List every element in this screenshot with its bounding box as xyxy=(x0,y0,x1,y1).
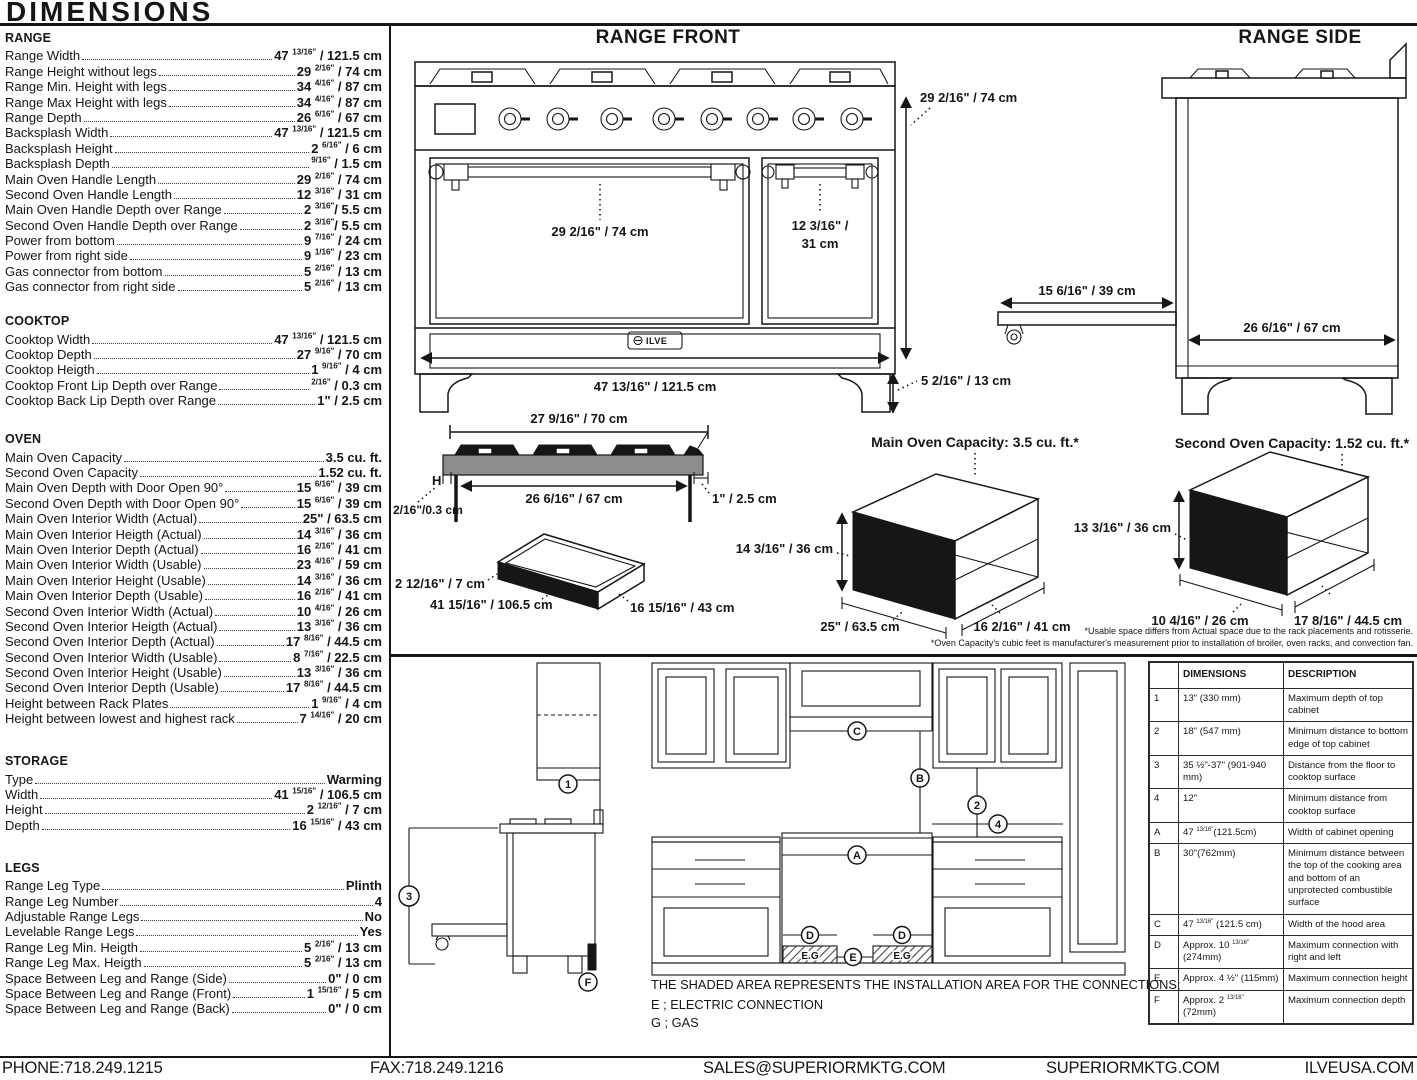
dotted-leader xyxy=(84,121,295,122)
spec-value: 17 8/16" / 44.5 cm xyxy=(286,634,382,649)
table-header-key xyxy=(1149,662,1179,688)
row-description: Maximum connection depth xyxy=(1284,990,1414,1024)
spec-value: Plinth xyxy=(346,878,382,893)
footer-website[interactable]: SUPERIORMKTG.COM xyxy=(1046,1059,1220,1078)
spec-value: No xyxy=(365,909,382,924)
spec-value: 2 12/16" / 7 cm xyxy=(307,802,382,817)
dotted-leader xyxy=(42,829,291,830)
spec-label: Type xyxy=(5,772,33,787)
dotted-leader xyxy=(130,259,302,260)
spec-row: Main Oven Handle Length 29 2/16" / 74 cm xyxy=(5,171,382,186)
spec-row: Range Depth 26 6/16" / 67 cm xyxy=(5,110,382,125)
row-key: C xyxy=(1149,914,1179,935)
spec-label: Main Oven Depth with Door Open 90° xyxy=(5,480,223,495)
table-header-description: DESCRIPTION xyxy=(1284,662,1414,688)
row-key: E xyxy=(1149,969,1179,990)
dotted-leader xyxy=(205,599,295,600)
spec-value: Warming xyxy=(327,772,382,787)
second-handle-label-2: 31 cm xyxy=(802,236,839,251)
spec-row: Cooktop Heigth 1 9/16" / 4 cm xyxy=(5,362,382,377)
open-door-shelf xyxy=(998,312,1176,325)
marker-3: 3 xyxy=(406,891,412,903)
spec-value: 0" / 0 cm xyxy=(328,971,382,986)
spec-row: Depth 16 15/16" / 43 cm xyxy=(5,817,382,832)
dotted-leader xyxy=(217,645,284,646)
spec-label: Second Oven Capacity xyxy=(5,465,138,480)
spec-value: 17 8/16" / 44.5 cm xyxy=(286,680,382,695)
dotted-leader xyxy=(219,389,309,390)
spec-value: Yes xyxy=(360,924,382,939)
spec-label: Second Oven Interior Width (Usable) xyxy=(5,650,217,665)
spec-row: Second Oven Interior Heigth (Actual) 13 … xyxy=(5,619,382,634)
spec-row: Range Leg Min. Heigth 5 2/16" / 13 cm xyxy=(5,939,382,954)
spec-label: Second Oven Interior Heigth (Actual) xyxy=(5,619,217,634)
spec-row: Space Between Leg and Range (Side) 0" / … xyxy=(5,970,382,985)
spec-value: 4 xyxy=(375,894,382,909)
dotted-leader xyxy=(170,707,309,708)
dotted-leader xyxy=(204,538,295,539)
upper-left-cabinets xyxy=(652,663,790,768)
dotted-leader xyxy=(165,275,302,276)
spec-section-range: RANGE Range Width 47 13/16" / 121.5 cm R… xyxy=(5,31,382,294)
table-row: A 47 13/16"(121.5cm) Width of cabinet op… xyxy=(1149,822,1413,843)
dotted-leader xyxy=(224,676,295,677)
spec-label: Second Oven Handle Depth over Range xyxy=(5,218,238,233)
row-dimension: Approx. 10 13/16" (274mm) xyxy=(1179,935,1284,969)
spec-label: Power from bottom xyxy=(5,233,115,248)
leg-height-label: 5 2/16" / 13 cm xyxy=(921,373,1011,388)
spec-label: Range Min. Height with legs xyxy=(5,79,167,94)
dotted-leader xyxy=(208,584,295,585)
cooktop-profile-drawing: 27 9/16" / 70 cm 26 6/16" / 67 cm 1" / 2… xyxy=(393,411,777,522)
spec-value: 23 4/16" / 59 cm xyxy=(297,557,382,572)
dotted-leader xyxy=(124,461,324,462)
dotted-leader xyxy=(224,213,302,214)
front-right-leg xyxy=(838,374,890,412)
section-title-oven: OVEN xyxy=(5,432,382,446)
spec-label: Second Oven Interior Depth (Actual) xyxy=(5,634,215,649)
dotted-leader xyxy=(215,615,295,616)
dotted-leader xyxy=(169,106,295,107)
spec-row: Main Oven Interior Width (Usable) 23 4/1… xyxy=(5,557,382,572)
row-description: Maximum connection with right and left xyxy=(1284,935,1414,969)
dotted-leader xyxy=(201,553,295,554)
spec-row: Gas connector from right side 5 2/16" / … xyxy=(5,279,382,294)
marker-1: 1 xyxy=(565,779,571,791)
spec-row: Second Oven Interior Depth (Actual) 17 8… xyxy=(5,634,382,649)
spec-value: 1.52 cu. ft. xyxy=(318,465,382,480)
table-row: D Approx. 10 13/16" (274mm) Maximum conn… xyxy=(1149,935,1413,969)
spec-row: Second Oven Interior Width (Usable) 8 7/… xyxy=(5,649,382,664)
row-key: F xyxy=(1149,990,1179,1024)
spec-label: Main Oven Interior Heigth (Actual) xyxy=(5,527,202,542)
row-description: Minimum distance between the top of the … xyxy=(1284,844,1414,914)
footnote-2: *Oven Capacity's cubic feet is manufactu… xyxy=(931,638,1413,650)
dotted-leader xyxy=(141,920,362,921)
dotted-leader xyxy=(169,90,295,91)
section-title-legs: LEGS xyxy=(5,861,382,875)
footnote-1: *Usable space differs from Actual space … xyxy=(931,626,1413,638)
spec-row: Range Max Height with legs 34 4/16" / 87… xyxy=(5,94,382,109)
spec-row: Range Min. Height with legs 34 4/16" / 8… xyxy=(5,79,382,94)
row-dimension: 30"(762mm) xyxy=(1179,844,1284,914)
second-oven-height-label: 13 3/16" / 36 cm xyxy=(1074,520,1171,535)
spec-row: Power from right side 9 1/16" / 23 cm xyxy=(5,248,382,263)
table-row: E Approx. 4 ½" (115mm) Maximum connectio… xyxy=(1149,969,1413,990)
spec-label: Cooktop Back Lip Depth over Range xyxy=(5,393,216,408)
front-lip-label: 2/16"/0.3 cm xyxy=(393,503,463,517)
spec-label: Height between Rack Plates xyxy=(5,696,168,711)
spec-row: Range Leg Number 4 xyxy=(5,893,382,908)
spec-row: Second Oven Handle Length 12 3/16" / 31 … xyxy=(5,187,382,202)
spec-label: Main Oven Handle Depth over Range xyxy=(5,202,222,217)
door-caster xyxy=(1005,325,1023,344)
upper-right-cabinets xyxy=(933,663,1062,768)
range-height-label: 29 2/16" / 74 cm xyxy=(920,90,1017,105)
dotted-leader xyxy=(97,373,310,374)
row-dimension: 47 13/16" (121.5 cm) xyxy=(1179,914,1284,935)
second-oven-capacity-title: Second Oven Capacity: 1.52 cu. ft.* xyxy=(1175,435,1410,451)
dotted-leader xyxy=(140,476,316,477)
footer-rule xyxy=(0,1056,1417,1058)
spec-row: Second Oven Capacity 1.52 cu. ft. xyxy=(5,465,382,480)
spec-value: 8 7/16" / 22.5 cm xyxy=(293,650,382,665)
marker-f: F xyxy=(585,977,592,989)
spec-value: 12 3/16" / 31 cm xyxy=(297,187,382,202)
row-dimension: 18" (547 mm) xyxy=(1179,722,1284,756)
spec-rows-storage: Type Warming Width 41 15/16" / 106.5 cm … xyxy=(5,771,382,833)
backsplash xyxy=(1390,44,1406,78)
spec-rows-cooktop: Cooktop Width 47 13/16" / 121.5 cm Cookt… xyxy=(5,331,382,408)
spec-row: Backsplash Width 47 13/16" / 121.5 cm xyxy=(5,125,382,140)
spec-label: Cooktop Depth xyxy=(5,347,92,362)
spec-label: Range Leg Number xyxy=(5,894,118,909)
marker-b: B xyxy=(916,773,924,785)
spec-label: Range Height without legs xyxy=(5,64,157,79)
spec-label: Main Oven Interior Depth (Actual) xyxy=(5,542,199,557)
spec-row: Main Oven Depth with Door Open 90° 15 6/… xyxy=(5,480,382,495)
spec-row: Second Oven Interior Depth (Usable) 17 8… xyxy=(5,680,382,695)
row-dimension: Approx. 4 ½" (115mm) xyxy=(1179,969,1284,990)
section-title-cooktop: COOKTOP xyxy=(5,314,382,328)
row-description: Minimum distance from cooktop surface xyxy=(1284,789,1414,823)
dotted-leader xyxy=(225,491,294,492)
marker-e: E xyxy=(849,952,856,964)
spec-row: Range Width 47 13/16" / 121.5 cm xyxy=(5,48,382,63)
spec-row: Cooktop Back Lip Depth over Range 1" / 2… xyxy=(5,393,382,408)
main-handle-label: 29 2/16" / 74 cm xyxy=(551,224,648,239)
spec-value: 16 2/16" / 41 cm xyxy=(297,542,382,557)
main-oven-door xyxy=(430,158,749,324)
spec-label: Backsplash Depth xyxy=(5,156,110,171)
dotted-leader xyxy=(140,951,302,952)
front-lip-h-label: H xyxy=(432,473,441,488)
spec-row: Cooktop Depth 27 9/16" / 70 cm xyxy=(5,347,382,362)
spec-rows-oven: Main Oven Capacity 3.5 cu. ft. Second Ov… xyxy=(5,449,382,726)
dotted-leader xyxy=(82,59,272,60)
spec-label: Second Oven Depth with Door Open 90° xyxy=(5,496,239,511)
spec-row: Main Oven Interior Heigth (Actual) 14 3/… xyxy=(5,526,382,541)
spec-value: 5 2/16" / 13 cm xyxy=(304,279,382,294)
spec-row: Gas connector from bottom 5 2/16" / 13 c… xyxy=(5,263,382,278)
dotted-leader xyxy=(115,152,310,153)
spec-value: 16 15/16" / 43 cm xyxy=(292,818,382,833)
spec-label: Main Oven Interior Width (Usable) xyxy=(5,557,202,572)
brand-text: ILVE xyxy=(646,336,667,346)
spec-section-oven: OVEN Main Oven Capacity 3.5 cu. ft. Seco… xyxy=(5,432,382,726)
spec-label: Backsplash Width xyxy=(5,125,108,140)
oven-capacity-footnotes: *Usable space differs from Actual space … xyxy=(931,626,1413,649)
spec-label: Range Leg Type xyxy=(5,878,100,893)
spec-label: Cooktop Front Lip Depth over Range xyxy=(5,378,217,393)
dotted-leader xyxy=(219,661,291,662)
dotted-leader xyxy=(110,136,272,137)
spec-value: 1 9/16" / 4 cm xyxy=(311,696,382,711)
row-dimension: Approx. 2 13/16" (72mm) xyxy=(1179,990,1284,1024)
range-side-small xyxy=(507,833,595,956)
table-row: 1 13" (330 mm) Maximum depth of top cabi… xyxy=(1149,688,1413,722)
spec-value: 9 7/16" / 24 cm xyxy=(304,233,382,248)
storage-drawer-drawing: 2 12/16" / 7 cm 41 15/16" / 106.5 cm 16 … xyxy=(395,534,734,615)
row-dimension: 13" (330 mm) xyxy=(1179,688,1284,722)
spec-label: Cooktop Heigth xyxy=(5,362,95,377)
footer-brand-website[interactable]: ILVEUSA.COM xyxy=(1305,1059,1414,1078)
spec-value: 47 13/16" / 121.5 cm xyxy=(274,332,382,347)
spec-value: 27 9/16" / 70 cm xyxy=(297,347,382,362)
spec-row: Range Leg Max. Heigth 5 2/16" / 13 cm xyxy=(5,955,382,970)
spec-value: 13 3/16" / 36 cm xyxy=(297,619,382,634)
spec-row: Range Leg Type Plinth xyxy=(5,878,382,893)
control-knobs xyxy=(499,108,872,130)
spec-value: 25" / 63.5 cm xyxy=(303,511,382,526)
dotted-leader xyxy=(218,404,315,405)
dotted-leader xyxy=(221,691,284,692)
row-description: Maximum depth of top cabinet xyxy=(1284,688,1414,722)
spec-label: Gas connector from right side xyxy=(5,279,176,294)
marker-d-right: D xyxy=(898,930,906,942)
dotted-leader xyxy=(45,813,305,814)
spec-value: 13 3/16" / 36 cm xyxy=(297,665,382,680)
spec-label: Gas connector from bottom xyxy=(5,264,163,279)
spec-row: Height 2 12/16" / 7 cm xyxy=(5,802,382,817)
spec-row: Main Oven Interior Height (Usable) 14 3/… xyxy=(5,572,382,587)
row-key: 3 xyxy=(1149,755,1179,789)
table-row: F Approx. 2 13/16" (72mm) Maximum connec… xyxy=(1149,990,1413,1024)
spec-value: 34 4/16" / 87 cm xyxy=(297,79,382,94)
dotted-leader xyxy=(117,244,302,245)
dotted-leader xyxy=(112,167,309,168)
spec-row: Backsplash Depth 9/16" / 1.5 cm xyxy=(5,156,382,171)
spec-row: Cooktop Width 47 13/16" / 121.5 cm xyxy=(5,331,382,346)
second-handle-label-1: 12 3/16" / xyxy=(792,218,849,233)
spec-label: Space Between Leg and Range (Side) xyxy=(5,971,227,986)
spec-label: Range Leg Max. Heigth xyxy=(5,955,142,970)
table-row: B 30"(762mm) Minimum distance between th… xyxy=(1149,844,1413,914)
dotted-leader xyxy=(94,358,295,359)
spec-value: 1 9/16" / 4 cm xyxy=(311,362,382,377)
spec-label: Adjustable Range Legs xyxy=(5,909,139,924)
range-width-label: 47 13/16" / 121.5 cm xyxy=(594,379,717,394)
spec-sheet-page: DIMENSIONS RANGE Range Width 47 13/16" /… xyxy=(0,0,1417,1080)
spec-row: Backsplash Height 2 6/16" / 6 cm xyxy=(5,140,382,155)
row-key: 4 xyxy=(1149,789,1179,823)
dotted-leader xyxy=(240,229,302,230)
dotted-leader xyxy=(159,75,295,76)
spec-label: Power from right side xyxy=(5,248,128,263)
spec-label: Main Oven Interior Height (Usable) xyxy=(5,573,206,588)
wall-cabinet xyxy=(537,663,600,780)
cooktop-burners xyxy=(455,445,703,455)
row-description: Width of the hood area xyxy=(1284,914,1414,935)
spec-label: Main Oven Interior Width (Actual) xyxy=(5,511,197,526)
spec-section-cooktop: COOKTOP Cooktop Width 47 13/16" / 121.5 … xyxy=(5,314,382,408)
spec-section-storage: STORAGE Type Warming Width 41 15/16" / 1… xyxy=(5,754,382,833)
spec-label: Range Width xyxy=(5,48,80,63)
spec-row: Second Oven Depth with Door Open 90° 15 … xyxy=(5,495,382,510)
range-depth-label: 26 6/16" / 67 cm xyxy=(1243,320,1340,335)
spec-value: 1" / 2.5 cm xyxy=(317,393,382,408)
storage-height-label: 2 12/16" / 7 cm xyxy=(395,576,485,591)
spec-value: 47 13/16" / 121.5 cm xyxy=(274,125,382,140)
dotted-leader xyxy=(35,783,325,784)
row-key: D xyxy=(1149,935,1179,969)
dimensions-table-wrap: DIMENSIONS DESCRIPTION 1 13" (330 mm) Ma… xyxy=(1148,661,1414,1025)
spec-label: Range Max Height with legs xyxy=(5,95,167,110)
eg-label-right: E.G xyxy=(893,951,910,962)
dotted-leader xyxy=(229,982,326,983)
main-oven-height-label: 14 3/16" / 36 cm xyxy=(736,541,833,556)
dotted-leader xyxy=(199,522,301,523)
spec-row: Adjustable Range Legs No xyxy=(5,909,382,924)
spec-value: 9 1/16" / 23 cm xyxy=(304,248,382,263)
dotted-leader xyxy=(120,905,372,906)
spec-value: 2 6/16" / 6 cm xyxy=(311,141,382,156)
dotted-leader xyxy=(219,630,294,631)
spec-value: 5 2/16" / 13 cm xyxy=(304,955,382,970)
elevation-installation-drawing: C B 2 4 xyxy=(652,663,1125,975)
row-description: Minimum distance to bottom edge of top c… xyxy=(1284,722,1414,756)
spec-row: Power from bottom 9 7/16" / 24 cm xyxy=(5,233,382,248)
spec-row: Second Oven Handle Depth over Range 2 3/… xyxy=(5,217,382,232)
spec-value: 5 2/16" / 13 cm xyxy=(304,940,382,955)
row-key: 1 xyxy=(1149,688,1179,722)
range-front-drawing: ILVE 47 13/16" / 121.5 cm 29 2/16" / 74 … xyxy=(415,62,1017,412)
spec-row: Space Between Leg and Range (Back) 0" / … xyxy=(5,1001,382,1016)
spec-value: 29 2/16" / 74 cm xyxy=(297,172,382,187)
top-diagrams: ILVE 47 13/16" / 121.5 cm 29 2/16" / 74 … xyxy=(390,22,1417,656)
dotted-leader xyxy=(92,343,272,344)
eg-label-left: E.G xyxy=(801,951,818,962)
table-header-row: DIMENSIONS DESCRIPTION xyxy=(1149,662,1413,688)
side-back-leg xyxy=(1342,378,1392,414)
table-row: 3 35 ½"-37" (901-940 mm) Distance from t… xyxy=(1149,755,1413,789)
spec-value: 15 6/16" / 39 cm xyxy=(297,480,382,495)
row-description: Distance from the floor to cooktop surfa… xyxy=(1284,755,1414,789)
spec-value: 14 3/16" / 36 cm xyxy=(297,573,382,588)
table-header-dimensions: DIMENSIONS xyxy=(1179,662,1284,688)
dotted-leader xyxy=(40,798,272,799)
dotted-leader xyxy=(174,198,295,199)
spec-row: Width 41 15/16" / 106.5 cm xyxy=(5,787,382,802)
spec-value: 10 4/16" / 26 cm xyxy=(297,604,382,619)
spec-row: Second Oven Interior Height (Usable) 13 … xyxy=(5,665,382,680)
spec-value: 0" / 0 cm xyxy=(328,1001,382,1016)
dotted-leader xyxy=(241,507,294,508)
gas-connection-note: G ; GAS xyxy=(651,1015,699,1030)
marker-d-left: D xyxy=(806,930,814,942)
dotted-leader xyxy=(232,1012,326,1013)
spec-value: 16 2/16" / 41 cm xyxy=(297,588,382,603)
row-key: A xyxy=(1149,822,1179,843)
spec-label: Main Oven Interior Depth (Usable) xyxy=(5,588,203,603)
spec-rows-range: Range Width 47 13/16" / 121.5 cm Range H… xyxy=(5,48,382,294)
spec-value: 41 15/16" / 106.5 cm xyxy=(274,787,382,802)
section-title-range: RANGE xyxy=(5,31,382,45)
dotted-leader xyxy=(204,568,295,569)
dotted-leader xyxy=(178,290,302,291)
spec-value: 2 3/16"/ 5.5 cm xyxy=(304,218,382,233)
dotted-leader xyxy=(102,889,344,890)
spec-label: Second Oven Interior Width (Actual) xyxy=(5,604,213,619)
spec-label: Range Depth xyxy=(5,110,82,125)
spec-section-legs: LEGS Range Leg Type Plinth Range Leg Num… xyxy=(5,861,382,1017)
spec-label: Second Oven Handle Length xyxy=(5,187,172,202)
spec-label: Second Oven Interior Height (Usable) xyxy=(5,665,222,680)
section-title-storage: STORAGE xyxy=(5,754,382,768)
spec-value: 7 14/16" / 20 cm xyxy=(300,711,383,726)
spec-value: 15 6/16" / 39 cm xyxy=(297,496,382,511)
dotted-leader xyxy=(237,722,298,723)
spec-row: Space Between Leg and Range (Front) 1 15… xyxy=(5,986,382,1001)
table-row: C 47 13/16" (121.5 cm) Width of the hood… xyxy=(1149,914,1413,935)
row-dimension: 35 ½"-37" (901-940 mm) xyxy=(1179,755,1284,789)
spec-label: Space Between Leg and Range (Back) xyxy=(5,1001,230,1016)
spec-label: Width xyxy=(5,787,38,802)
marker-2: 2 xyxy=(974,800,980,812)
table-row: 4 12" Minimum distance from cooktop surf… xyxy=(1149,789,1413,823)
spec-value: 29 2/16" / 74 cm xyxy=(297,64,382,79)
footer-email[interactable]: SALES@SUPERIORMKTG.COM xyxy=(703,1059,945,1078)
spec-value: 47 13/16" / 121.5 cm xyxy=(274,48,382,63)
dotted-leader xyxy=(144,966,302,967)
row-key: 2 xyxy=(1149,722,1179,756)
dimensions-table: DIMENSIONS DESCRIPTION 1 13" (330 mm) Ma… xyxy=(1148,661,1414,1025)
cooktop-inner-width-label: 26 6/16" / 67 cm xyxy=(525,491,622,506)
spec-row: Main Oven Interior Width (Actual) 25" / … xyxy=(5,511,382,526)
main-oven-capacity-title: Main Oven Capacity: 3.5 cu. ft.* xyxy=(871,434,1079,450)
side-front-leg xyxy=(1182,378,1232,414)
spec-label: Height xyxy=(5,802,43,817)
spec-row: Type Warming xyxy=(5,771,382,786)
row-key: B xyxy=(1149,844,1179,914)
burner-grates-front xyxy=(430,69,888,84)
main-oven-width-label: 25" / 63.5 cm xyxy=(820,619,899,634)
dotted-leader xyxy=(136,935,357,936)
storage-width-label: 41 15/16" / 106.5 cm xyxy=(430,597,553,612)
spec-value: 9/16" / 1.5 cm xyxy=(311,156,382,171)
spec-label: Range Leg Min. Heigth xyxy=(5,940,138,955)
spec-label: Depth xyxy=(5,818,40,833)
back-lip-label: 1" / 2.5 cm xyxy=(712,491,777,506)
main-oven-handle xyxy=(429,164,750,190)
dotted-leader xyxy=(158,183,295,184)
spec-row: Height between lowest and highest rack 7… xyxy=(5,711,382,726)
spec-value: 2/16" / 0.3 cm xyxy=(311,378,382,393)
spec-value: 2 3/16"/ 5.5 cm xyxy=(304,202,382,217)
spec-row: Main Oven Capacity 3.5 cu. ft. xyxy=(5,449,382,464)
side-installation-drawing: 1 3 F xyxy=(399,663,603,991)
spec-value: 5 2/16" / 13 cm xyxy=(304,264,382,279)
